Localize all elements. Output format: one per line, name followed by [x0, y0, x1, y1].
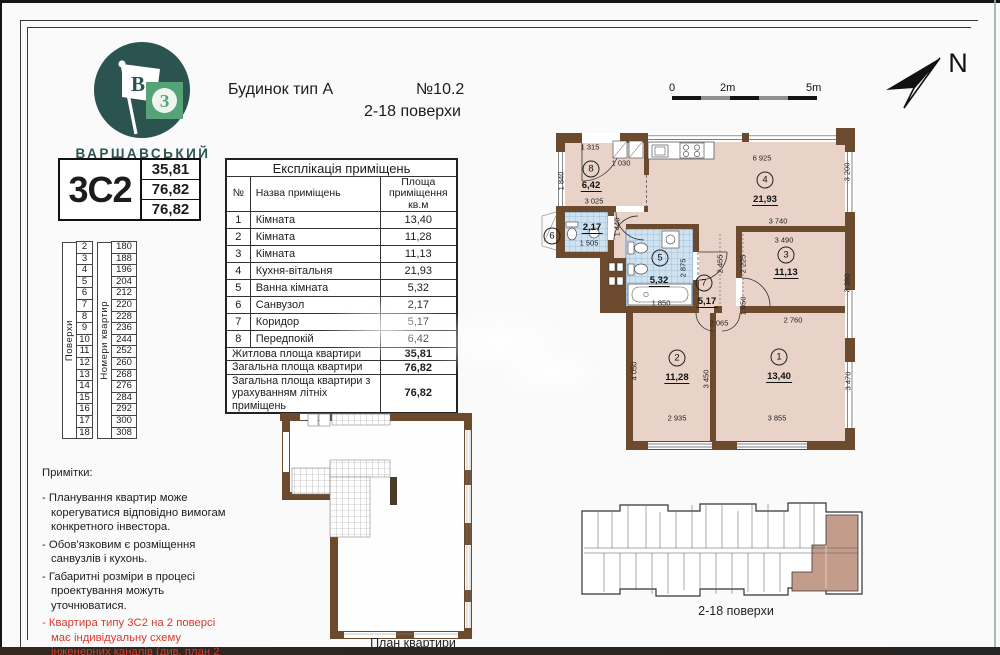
floors-range-title: 2-18 поверхи — [364, 103, 461, 121]
explication-cell: 21,93 — [380, 263, 457, 280]
note-item: Планування квартир може корегуватися від… — [42, 491, 238, 534]
explication-cell: Кімната — [250, 229, 380, 246]
dimension-label: 3 450 — [702, 370, 711, 389]
dimension-label: 2 875 — [679, 259, 688, 278]
room-area-label: 5,17 — [697, 296, 718, 308]
room-area-label: 11,28 — [664, 372, 689, 384]
note-item-warning: Квартира типу 3С2 на 2 поверсі має індив… — [42, 616, 238, 655]
explication-row: 1Кімната13,40 — [226, 212, 457, 229]
explication-table: Експлікація приміщень № Назва приміщень … — [225, 158, 458, 414]
room-area-label: 11,13 — [773, 267, 798, 279]
room-number-badge: 5 — [652, 250, 669, 267]
north-arrow-icon: N — [878, 38, 978, 110]
col-header-area: Площаприміщеннякв.м — [380, 177, 457, 212]
explication-summary-row: Загальна площа квартири76,82 — [226, 361, 457, 374]
summary-value: 35,81 — [380, 348, 457, 361]
explication-row: 2Кімната11,28 — [226, 229, 457, 246]
explication-row: 4Кухня-вітальня21,93 — [226, 263, 457, 280]
room-area-label: 13,40 — [766, 371, 792, 383]
explication-row: 7Коридор5,17 — [226, 314, 457, 331]
explication-cell: 2 — [226, 229, 250, 246]
dimension-label: 1 050 — [739, 297, 748, 316]
explication-row: 6Санвузол2,17 — [226, 297, 457, 314]
explication-cell: 7 — [226, 314, 250, 331]
building-type-title: Будинок тип А — [228, 81, 333, 99]
dimension-label: 2 065 — [710, 319, 729, 328]
explication-cell: 6 — [226, 297, 250, 314]
apts-caption: Номери квартир — [99, 301, 110, 380]
dimension-label: 6 925 — [753, 154, 772, 163]
dimension-label: 1 440 — [613, 218, 622, 237]
scale-label-5m: 5m — [806, 82, 821, 94]
brand-logo: В З — [80, 38, 205, 146]
key-plan-caption: 2-18 поверхи — [676, 604, 796, 618]
explication-cell: 4 — [226, 263, 250, 280]
explication-row: 8Передпокій6,42 — [226, 331, 457, 348]
room-number-badge: 4 — [757, 172, 774, 189]
explication-cell: 8 — [226, 331, 250, 348]
scale-bar-segment — [788, 96, 817, 100]
plan-number: №10.2 — [416, 81, 464, 99]
scale-label-2m: 2m — [720, 82, 735, 94]
dimension-label: 1 315 — [581, 143, 600, 152]
unit-total-area-summer: 76,82 — [142, 199, 199, 219]
dimension-label: 1 505 — [580, 239, 599, 248]
explication-cell: 1 — [226, 212, 250, 229]
unit-areas: 35,81 76,82 76,82 — [142, 160, 199, 219]
explication-cell: 5,32 — [380, 280, 457, 297]
explication-row: 5Ванна кімната5,32 — [226, 280, 457, 297]
room-number-badge: 2 — [669, 350, 686, 367]
apartment-numbers-table: Поверхи 23456789101112131415161718 Номер… — [62, 242, 137, 439]
north-label: N — [948, 48, 968, 78]
explication-cell: Кухня-вітальня — [250, 263, 380, 280]
explication-cell: 2,17 — [380, 297, 457, 314]
room-number-badge: 3 — [778, 247, 795, 264]
floor-number-cell: 18 — [76, 427, 93, 440]
dimension-label: 3 855 — [768, 414, 787, 423]
floors-caption-cell: Поверхи — [62, 242, 77, 439]
explication-cell: 5,17 — [380, 314, 457, 331]
dimension-label: 1 030 — [612, 159, 631, 168]
notes-title: Примітки: — [42, 466, 238, 480]
scale-bar-segment — [730, 96, 759, 100]
unit-type-code: 3С2 — [60, 160, 142, 219]
apts-column: 1801881962042122202282362442522602682762… — [111, 242, 137, 439]
room-area-label: 5,32 — [649, 275, 670, 287]
frame-line — [20, 20, 978, 21]
explication-cell: 6,42 — [380, 331, 457, 348]
explication-cell: 5 — [226, 280, 250, 297]
explication-cell: Кімната — [250, 246, 380, 263]
room-area-label: 21,93 — [752, 194, 778, 206]
dimension-label: 3 390 — [843, 274, 852, 293]
apts-group: Номери квартир 1801881962042122202282362… — [97, 242, 137, 439]
page-edge-left — [0, 0, 2, 655]
room-area-label: 6,42 — [581, 180, 602, 192]
frame-line — [20, 20, 21, 647]
explication-title: Експлікація приміщень — [226, 159, 457, 177]
explication-cell: Ванна кімната — [250, 280, 380, 297]
floor-plan-sheet: В З ВАРШАВСЬКИЙ Будинок тип А №10.2 2-18… — [0, 0, 1000, 655]
explication-cell: 13,40 — [380, 212, 457, 229]
col-header-name: Назва приміщень — [250, 177, 380, 212]
floors-column: 23456789101112131415161718 — [76, 242, 93, 439]
dimension-label: 3 490 — [775, 236, 794, 245]
explication-cell: Коридор — [250, 314, 380, 331]
dimension-label: 3 470 — [844, 372, 853, 391]
summary-label: Житлова площа квартири — [226, 348, 380, 361]
scale-bar-segment — [701, 96, 730, 100]
dimension-label: 2 760 — [784, 316, 803, 325]
explication-cell: Кімната — [250, 212, 380, 229]
dimension-label: 2 225 — [739, 255, 748, 274]
room-number-badge: 6 — [544, 228, 561, 245]
dimension-label: 2 935 — [668, 414, 687, 423]
flag-letter: В — [131, 72, 145, 96]
apartment-number-cell: 308 — [111, 427, 137, 440]
floor-plan-labels: 1 3151 0301 8403 0256 9253 2001 5051 440… — [540, 118, 860, 463]
key-plan — [575, 498, 880, 602]
dimension-label: 4 050 — [630, 362, 639, 381]
note-item: Обов'язковим є розміщення санвузлів і ку… — [42, 538, 238, 567]
room-number-badge: 8 — [583, 161, 600, 178]
notes-block: Примітки: Планування квартир може корегу… — [42, 466, 238, 655]
structural-plan — [258, 406, 520, 644]
explication-cell: Передпокій — [250, 331, 380, 348]
scale-bar-segment — [672, 96, 701, 100]
floors-group: Поверхи 23456789101112131415161718 — [62, 242, 93, 439]
page-edge-right — [994, 0, 996, 655]
brand-logo-icon: В З — [80, 38, 205, 146]
notes-list: Планування квартир може корегуватися від… — [42, 491, 238, 655]
explication-cell: Санвузол — [250, 297, 380, 314]
room-number-badge: 1 — [771, 349, 788, 366]
square-letter: З — [160, 91, 170, 111]
scale-bar-segment — [759, 96, 788, 100]
apts-caption-cell: Номери квартир — [97, 242, 112, 439]
dimension-label: 1 850 — [652, 299, 671, 308]
explication-row: 3Кімната11,13 — [226, 246, 457, 263]
frame-line — [27, 27, 971, 28]
explication-cell: 11,13 — [380, 246, 457, 263]
unit-total-area: 76,82 — [142, 179, 199, 199]
dimension-label: 3 200 — [843, 163, 852, 182]
dimension-label: 2 455 — [716, 255, 725, 274]
frame-line — [27, 27, 28, 640]
page-edge-top — [0, 0, 1000, 3]
explication-cell: 3 — [226, 246, 250, 263]
explication-summary-row: Житлова площа квартири35,81 — [226, 348, 457, 361]
structural-plan-caption: План квартири — [348, 636, 478, 650]
floors-caption: Поверхи — [64, 320, 75, 361]
scale-label-0: 0 — [669, 82, 675, 94]
summary-label: Загальна площа квартири — [226, 361, 380, 374]
room-area-label: 2,17 — [582, 222, 603, 234]
explication-cell: 11,28 — [380, 229, 457, 246]
dimension-label: 3 740 — [769, 217, 788, 226]
summary-value: 76,82 — [380, 361, 457, 374]
col-header-no: № — [226, 177, 250, 212]
dimension-label: 3 025 — [585, 197, 604, 206]
unit-living-area: 35,81 — [142, 160, 199, 179]
dimension-label: 1 840 — [557, 172, 566, 191]
unit-type-card: 3С2 35,81 76,82 76,82 — [58, 158, 201, 221]
note-item: Габаритні розміри в процесі проектування… — [42, 570, 238, 613]
room-number-badge: 7 — [696, 275, 713, 292]
